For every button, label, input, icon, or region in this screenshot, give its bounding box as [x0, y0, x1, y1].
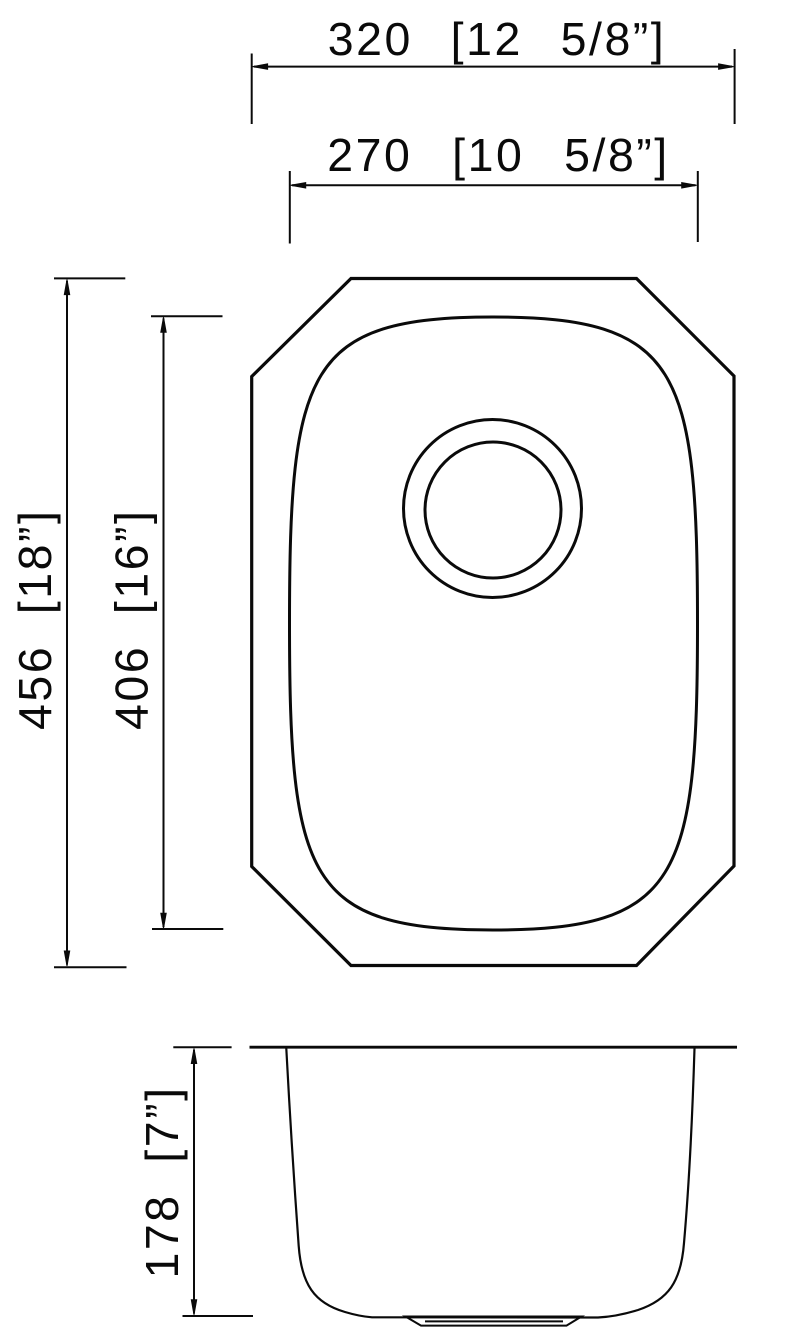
svg-text:406 [16”]: 406 [16”] [106, 509, 158, 730]
svg-text:178 [7”]: 178 [7”] [136, 1085, 188, 1278]
svg-text:270 [10 5/8”]: 270 [10 5/8”] [327, 129, 669, 181]
svg-text:456 [18”]: 456 [18”] [9, 509, 61, 730]
svg-text:320 [12 5/8”]: 320 [12 5/8”] [328, 13, 666, 65]
